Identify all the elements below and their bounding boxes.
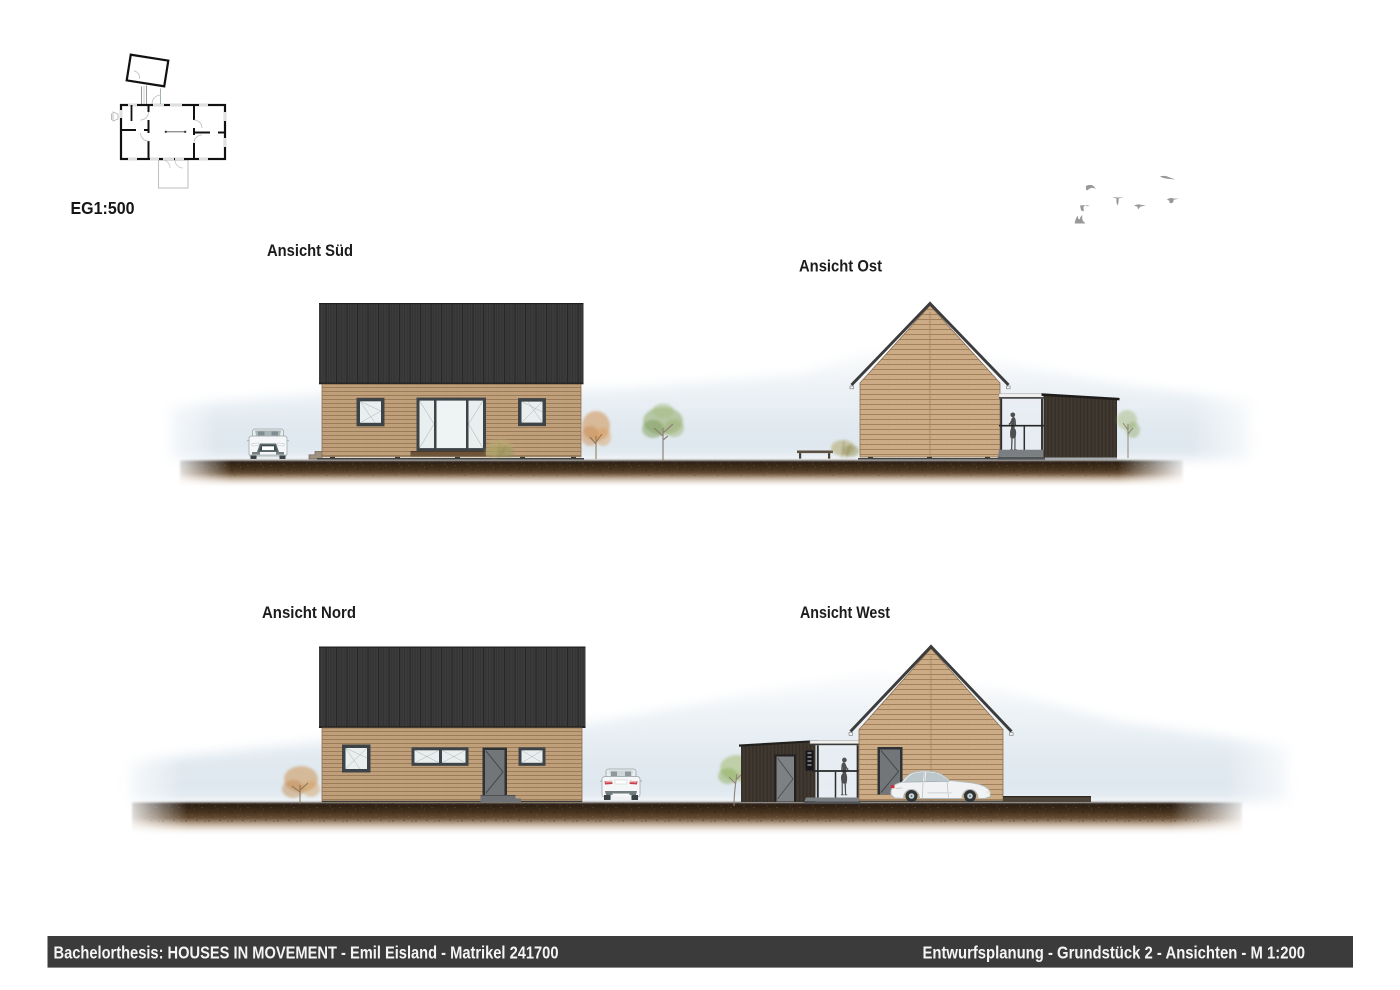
svg-text:Ansicht West: Ansicht West	[800, 604, 890, 622]
svg-text:EG1:500: EG1:500	[71, 198, 135, 218]
svg-text:Ansicht Nord: Ansicht Nord	[262, 604, 356, 622]
svg-text:Ansicht Süd: Ansicht Süd	[267, 242, 353, 260]
svg-text:Bachelorthesis: HOUSES IN MOVE: Bachelorthesis: HOUSES IN MOVEMENT - Emi…	[54, 943, 559, 963]
svg-text:Ansicht Ost: Ansicht Ost	[799, 258, 882, 276]
svg-text:Entwurfsplanung - Grundstück 2: Entwurfsplanung - Grundstück 2 - Ansicht…	[923, 943, 1306, 963]
